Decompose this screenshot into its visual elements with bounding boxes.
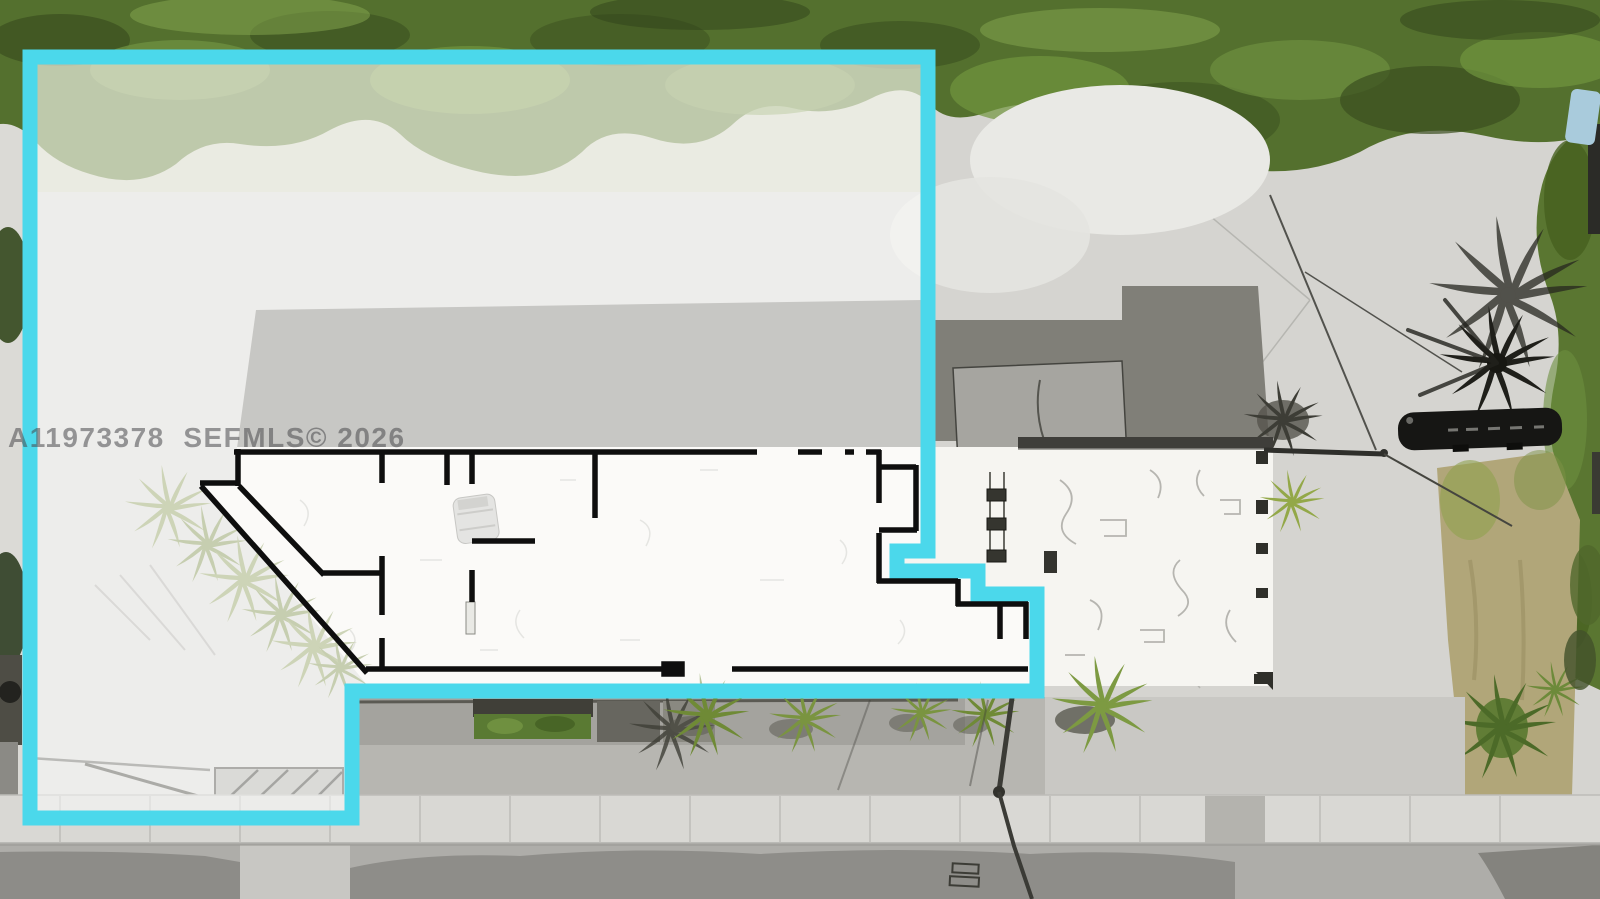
door-marker [466,602,475,634]
edge-object [1592,452,1600,514]
road [0,843,1600,899]
right-building-parapet [1018,437,1273,449]
wheel-object [0,681,21,703]
roof-hatch [1044,551,1057,573]
door-cap [664,664,682,674]
aerial-photo: A11973378 SEFMLS© 2026 [0,0,1600,899]
washed-canopy-tint [30,57,923,192]
watermark-text: A11973378 SEFMLS© 2026 [8,422,406,454]
